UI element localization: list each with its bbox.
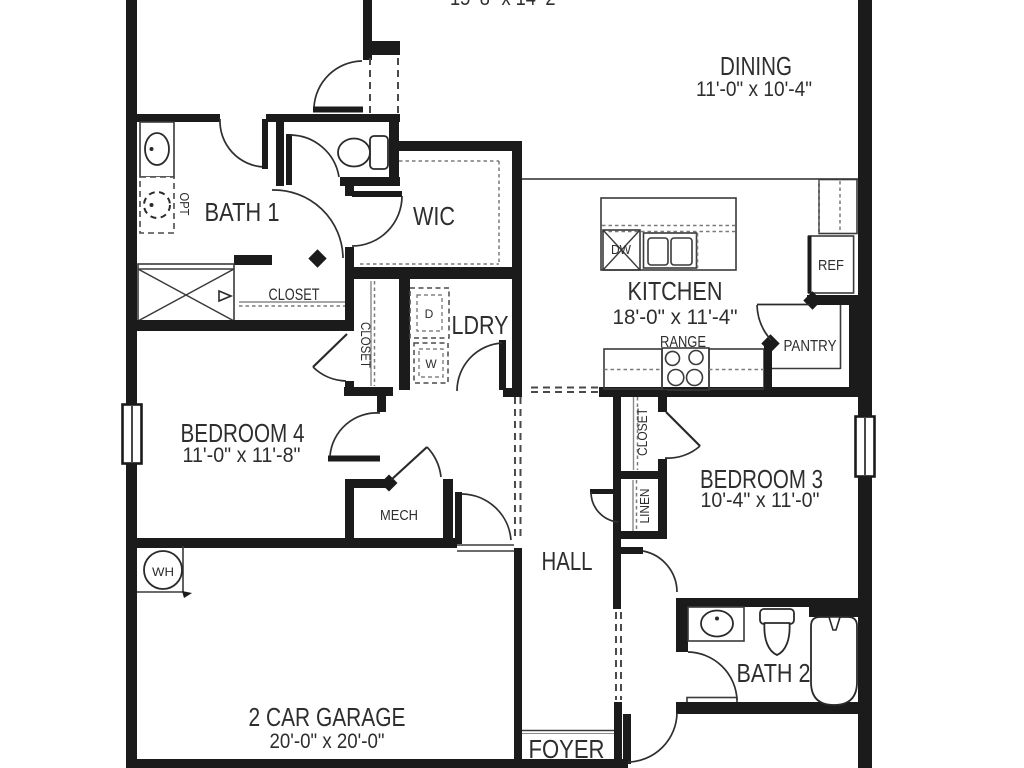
svg-text:REF: REF xyxy=(818,258,844,274)
svg-text:DW: DW xyxy=(611,242,632,257)
svg-text:18'-0" x 11'-4": 18'-0" x 11'-4" xyxy=(613,306,738,329)
svg-text:CLOSET: CLOSET xyxy=(269,286,320,304)
svg-text:W: W xyxy=(425,357,437,371)
svg-text:RANGE: RANGE xyxy=(660,334,706,351)
svg-text:CLOSET: CLOSET xyxy=(358,322,374,368)
svg-text:WH: WH xyxy=(152,565,174,579)
svg-text:CLOSET: CLOSET xyxy=(634,408,650,456)
svg-text:D: D xyxy=(425,307,434,321)
svg-text:WIC: WIC xyxy=(413,201,455,231)
svg-text:11'-0" x 10'-4": 11'-0" x 10'-4" xyxy=(696,78,812,101)
svg-text:BATH 2: BATH 2 xyxy=(737,658,811,688)
svg-text:BATH 1: BATH 1 xyxy=(205,197,280,227)
svg-text:10'-4" x 11'-0": 10'-4" x 11'-0" xyxy=(701,489,820,512)
svg-text:LDRY: LDRY xyxy=(452,310,509,340)
svg-text:2 CAR GARAGE: 2 CAR GARAGE xyxy=(249,702,406,732)
svg-text:15'-8" x 14'-2": 15'-8" x 14'-2" xyxy=(450,0,562,10)
svg-text:11'-0" x 11'-8": 11'-0" x 11'-8" xyxy=(183,444,301,467)
svg-text:LINEN: LINEN xyxy=(637,489,652,524)
svg-text:DINING: DINING xyxy=(720,51,792,81)
svg-text:FOYER: FOYER xyxy=(529,734,605,764)
svg-text:KITCHEN: KITCHEN xyxy=(628,276,723,306)
svg-text:PANTRY: PANTRY xyxy=(784,338,837,355)
svg-text:HALL: HALL xyxy=(542,546,593,576)
svg-text:OPT: OPT xyxy=(177,193,191,216)
svg-text:20'-0" x 20'-0": 20'-0" x 20'-0" xyxy=(270,730,385,753)
svg-text:MECH: MECH xyxy=(380,507,418,524)
